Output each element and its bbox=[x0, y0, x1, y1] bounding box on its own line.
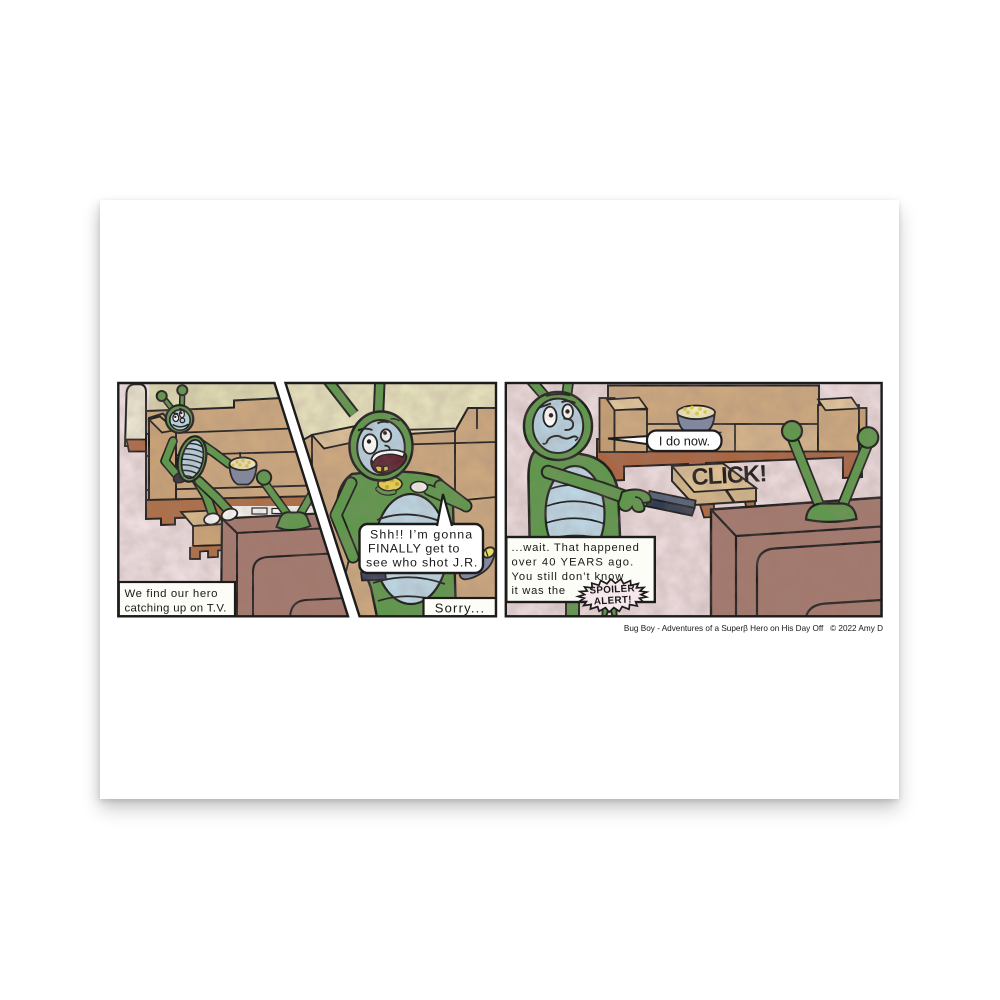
svg-text:it was the: it was the bbox=[512, 585, 566, 597]
svg-text:Bug Boy - Adventures of a Supe: Bug Boy - Adventures of a Superβ Hero on… bbox=[624, 624, 883, 633]
svg-text:catching up on T.V.: catching up on T.V. bbox=[125, 603, 227, 615]
svg-text:over 40 YEARS ago.: over 40 YEARS ago. bbox=[512, 557, 635, 569]
svg-text:I do now.: I do now. bbox=[659, 434, 710, 449]
svg-text:Sorry...: Sorry... bbox=[435, 601, 486, 616]
svg-text:You still don’t know: You still don’t know bbox=[512, 571, 625, 583]
svg-text:ALERT!: ALERT! bbox=[594, 594, 633, 607]
svg-text:see who shot J.R.: see who shot J.R. bbox=[366, 556, 478, 570]
svg-text:We find our hero: We find our hero bbox=[125, 588, 219, 600]
svg-text:...wait. That happened: ...wait. That happened bbox=[512, 542, 640, 554]
svg-text:FINALLY get to: FINALLY get to bbox=[368, 542, 460, 556]
svg-text:Shh!! I’m gonna: Shh!! I’m gonna bbox=[370, 528, 473, 542]
